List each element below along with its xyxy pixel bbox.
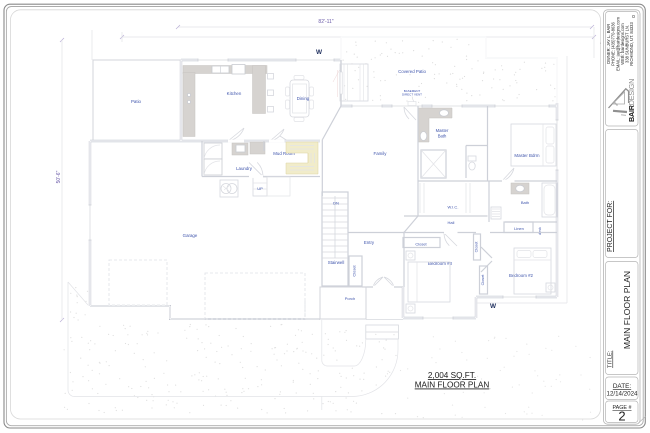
svg-text:W: W <box>316 49 323 56</box>
svg-text:2: 2 <box>618 409 625 424</box>
svg-text:Closet: Closet <box>352 264 357 276</box>
svg-text:Closet: Closet <box>475 241 479 253</box>
svg-text:MAIN FLOOR PLAN: MAIN FLOOR PLAN <box>415 381 490 390</box>
svg-text:Bath: Bath <box>438 134 447 139</box>
svg-text:DN: DN <box>333 201 339 206</box>
svg-text:2,004 SQ.FT.: 2,004 SQ.FT. <box>428 371 476 380</box>
svg-text:Patio: Patio <box>131 99 142 104</box>
svg-text:Dining: Dining <box>297 96 310 101</box>
svg-text:Kitchen: Kitchen <box>227 91 242 96</box>
svg-text:desk: desk <box>538 227 542 235</box>
svg-text:DIRECT VENT: DIRECT VENT <box>402 93 422 97</box>
svg-text:Stairwell: Stairwell <box>328 260 345 265</box>
svg-text:.: . <box>597 42 602 43</box>
svg-text:82'-11": 82'-11" <box>318 19 333 25</box>
svg-text:W.I.C.: W.I.C. <box>448 205 459 210</box>
svg-text:Laundry: Laundry <box>236 166 253 171</box>
svg-text:MAIN FLOOR PLAN: MAIN FLOOR PLAN <box>622 271 632 349</box>
svg-text:Entry: Entry <box>364 240 375 245</box>
svg-text:Garage: Garage <box>183 233 198 238</box>
svg-text:Family: Family <box>374 151 388 156</box>
svg-text:UP: UP <box>257 186 263 191</box>
svg-text:50'-6": 50'-6" <box>56 170 62 183</box>
svg-text:Covered Patio: Covered Patio <box>398 69 426 74</box>
svg-text:DATE:: DATE: <box>613 383 632 390</box>
svg-text:12/14/2024: 12/14/2024 <box>607 391 639 398</box>
svg-text:Closet: Closet <box>415 242 427 247</box>
svg-text:W: W <box>490 303 497 310</box>
svg-text:PROJECT FOR:: PROJECT FOR: <box>607 201 614 252</box>
svg-text:Hall: Hall <box>448 220 455 225</box>
svg-text:Porch: Porch <box>345 296 355 301</box>
svg-text:TITLE:: TITLE: <box>608 350 614 368</box>
svg-text:Master Bdrm: Master Bdrm <box>514 153 539 158</box>
svg-text:Linen: Linen <box>514 226 524 231</box>
svg-text:RICHMOND, UT. 84333: RICHMOND, UT. 84333 <box>629 22 634 66</box>
svg-text:Bath: Bath <box>521 200 529 205</box>
svg-text:Master: Master <box>436 128 449 133</box>
svg-text:Closet: Closet <box>481 274 485 286</box>
svg-text:Bedroom #2: Bedroom #2 <box>509 273 533 278</box>
